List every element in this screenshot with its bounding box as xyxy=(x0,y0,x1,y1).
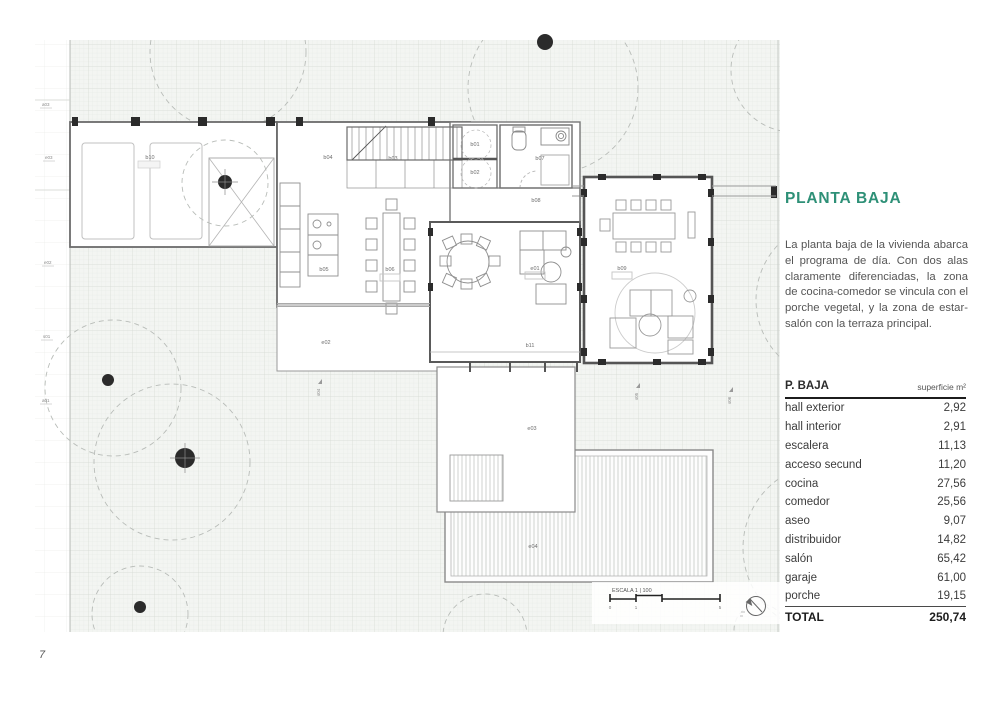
room-label-b05: b05 xyxy=(319,267,328,273)
table-row: hall interior 2,91 xyxy=(785,418,966,437)
row-label: escalera xyxy=(785,440,828,452)
table-row: garaje 61,00 xyxy=(785,568,966,587)
right-panel: PLANTA BAJA La planta baja de la viviend… xyxy=(785,190,968,344)
row-value: 9,07 xyxy=(944,515,966,527)
row-label: cocina xyxy=(785,478,818,490)
edge-label-4: s01 xyxy=(43,334,51,339)
row-value: 65,42 xyxy=(937,553,966,565)
scale-label: ESCALA 1 | 100 xyxy=(612,588,652,594)
edge-label-5: a01 xyxy=(42,398,50,403)
plan-description: La planta baja de la vivienda abarca el … xyxy=(785,238,968,333)
terrace-e03 xyxy=(437,367,575,512)
room-label-b04: b04 xyxy=(323,155,332,161)
edge-label-3: e02 xyxy=(44,260,52,265)
table-row: aseo 9,07 xyxy=(785,512,966,531)
row-value: 25,56 xyxy=(937,496,966,508)
page-title: PLANTA BAJA xyxy=(785,190,968,208)
row-label: hall interior xyxy=(785,421,841,433)
total-value: 250,74 xyxy=(929,610,966,624)
row-value: 14,82 xyxy=(937,534,966,546)
row-value: 11,20 xyxy=(938,459,966,471)
row-label: aseo xyxy=(785,515,810,527)
table-row: acceso secund 11,20 xyxy=(785,455,966,474)
room-label-b08: b08 xyxy=(531,198,540,204)
surface-table-header: P. BAJA superficie m² xyxy=(785,380,966,397)
table-row: comedor 25,56 xyxy=(785,493,966,512)
page-number: 7 xyxy=(39,649,45,661)
room-label-e04: e04 xyxy=(528,544,537,550)
surface-table: P. BAJA superficie m² hall exterior 2,92… xyxy=(785,380,966,627)
room-label-b02: b02 xyxy=(470,170,479,176)
edge-label-1: a03 xyxy=(42,102,50,107)
room-label-b09: b09 xyxy=(617,266,626,272)
table-row: distribuidor 14,82 xyxy=(785,531,966,550)
flag-label-3: s06 xyxy=(727,396,732,404)
room-label-e03: e03 xyxy=(527,426,536,432)
flag-label-1: s04 xyxy=(316,388,321,396)
row-value: 27,56 xyxy=(937,478,966,490)
row-value: 2,92 xyxy=(944,402,966,414)
row-label: comedor xyxy=(785,496,830,508)
room-label-b01: b01 xyxy=(470,142,479,148)
portfolio-page: b10 b04 b03 b01 b02 b07 b08 b05 b06 e01 … xyxy=(0,0,994,701)
table-row: escalera 11,13 xyxy=(785,437,966,456)
table-row: cocina 27,56 xyxy=(785,474,966,493)
row-value: 2,91 xyxy=(944,421,966,433)
room-label-b11: b11 xyxy=(526,343,535,349)
row-label: salón xyxy=(785,553,813,565)
table-row: hall exterior 2,92 xyxy=(785,399,966,418)
row-label: porche xyxy=(785,590,820,602)
row-value: 61,00 xyxy=(937,572,966,584)
table-total-row: TOTAL 250,74 xyxy=(785,607,966,627)
row-label: acceso secund xyxy=(785,459,862,471)
table-header-unit: superficie m² xyxy=(917,382,966,392)
row-value: 11,13 xyxy=(938,440,966,452)
room-label-b06: b06 xyxy=(385,267,394,273)
row-label: distribuidor xyxy=(785,534,841,546)
room-label-b07: b07 xyxy=(535,156,544,162)
row-value: 19,15 xyxy=(937,590,966,602)
table-row: porche 19,15 xyxy=(785,587,966,606)
table-row: salón 65,42 xyxy=(785,549,966,568)
table-header-name: P. BAJA xyxy=(785,380,829,392)
flag-label-2: s05 xyxy=(634,392,639,400)
row-label: garaje xyxy=(785,572,817,584)
room-label-b03: b03 xyxy=(388,156,397,162)
row-label: hall exterior xyxy=(785,402,844,414)
total-label: TOTAL xyxy=(785,610,824,624)
room-label-b10: b10 xyxy=(145,155,154,161)
edge-label-2: e03 xyxy=(45,155,53,160)
room-label-e01: e01 xyxy=(530,266,539,272)
room-label-e02: e02 xyxy=(321,340,330,346)
